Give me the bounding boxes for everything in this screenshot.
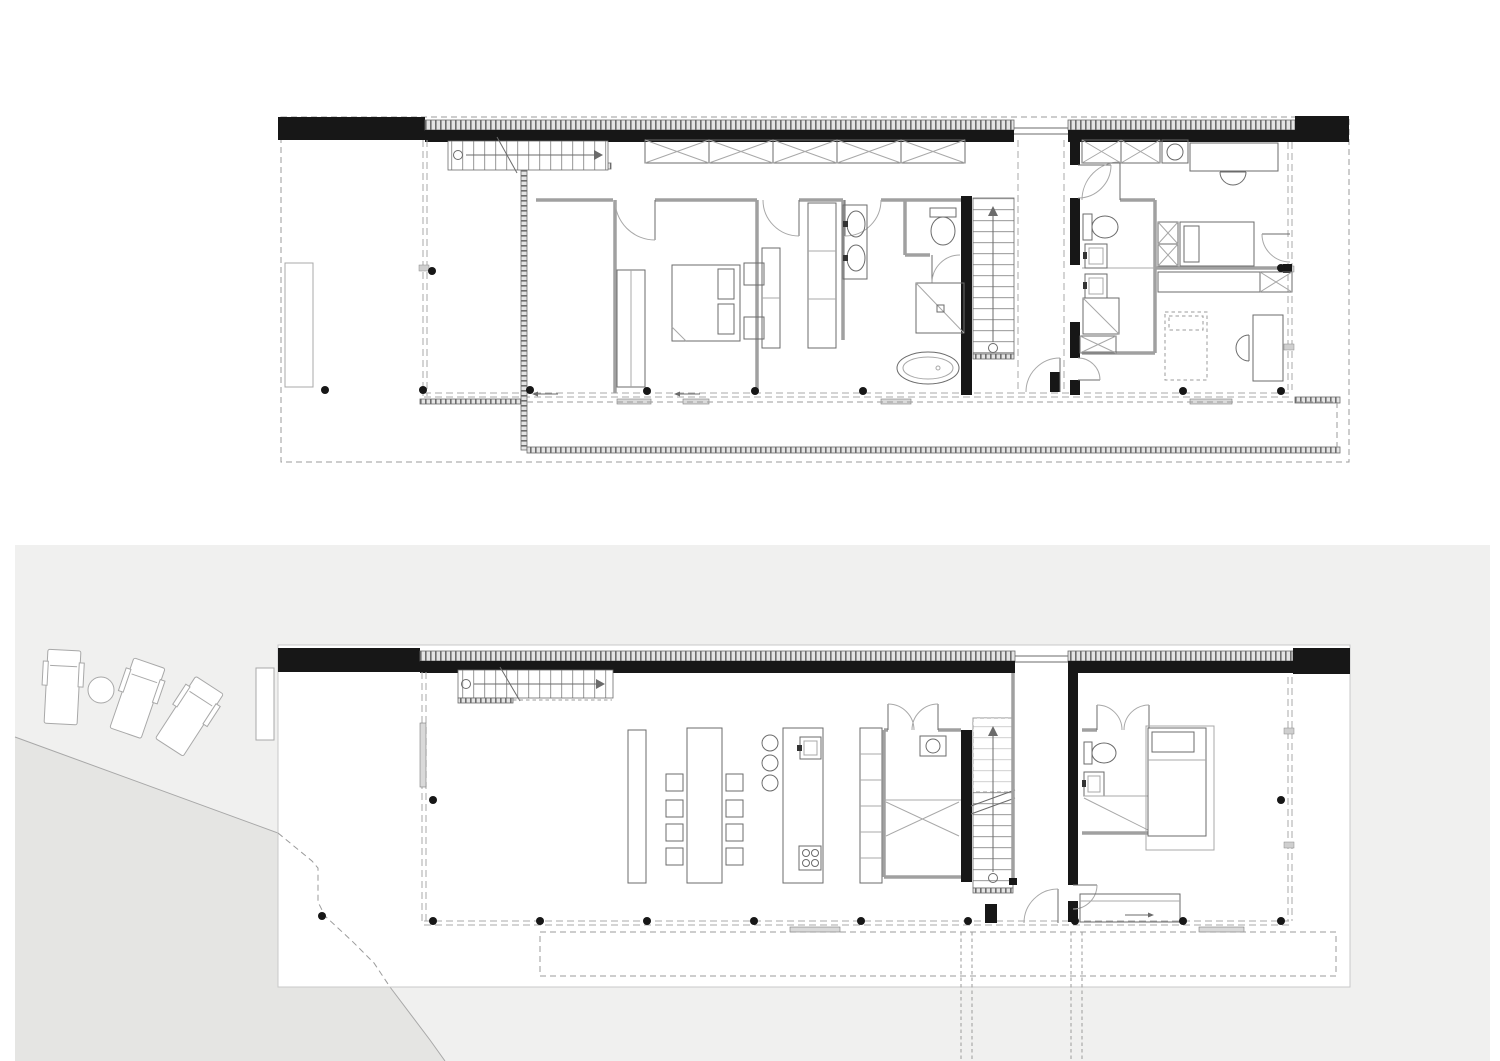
toilet-tank — [1083, 214, 1092, 240]
north-wall-parapet — [278, 116, 1349, 142]
stair-wall — [961, 196, 972, 395]
sliding-door — [420, 723, 426, 787]
tap-icon — [843, 255, 848, 261]
void-guardrail — [521, 166, 527, 450]
guest-bed-dashed — [1165, 312, 1207, 380]
bedroom-bed — [1148, 728, 1206, 836]
structural-columns-upper — [321, 264, 1285, 395]
toilet-bowl — [931, 217, 955, 245]
wardrobe-row-x — [645, 140, 1188, 163]
dining-table — [687, 728, 722, 883]
toilet-bowl — [1092, 216, 1118, 238]
counter — [1158, 272, 1260, 292]
plan-sheet — [0, 0, 1500, 1061]
breezeway-link-roof — [1014, 128, 1068, 134]
stair-flight-ground — [458, 667, 613, 703]
desk-south — [1253, 315, 1283, 381]
toilet-tank — [930, 208, 956, 217]
site-outline-dashed — [281, 117, 1349, 462]
master-bedroom — [617, 263, 764, 387]
desk-chair — [1236, 335, 1249, 361]
terrace-planter — [285, 263, 313, 387]
slide-arrow — [674, 392, 680, 397]
nightstand — [744, 263, 764, 285]
planter — [256, 668, 274, 740]
basin-icon — [1167, 144, 1183, 160]
breezeway-glazing-upper — [1018, 140, 1064, 392]
tap-icon — [843, 221, 848, 227]
floor-plan-drawing — [0, 0, 1500, 1061]
sink-basin — [847, 245, 865, 271]
nightstand — [744, 317, 764, 339]
lower-roof-outline — [527, 402, 1337, 447]
desk-north-group — [1190, 143, 1278, 185]
stair-down-upper — [973, 198, 1014, 359]
kids-bed — [1180, 222, 1254, 266]
kids-bedroom-north — [1158, 222, 1254, 266]
desk-chair — [1220, 172, 1246, 185]
kids-bedroom-south — [1158, 272, 1292, 381]
ground-floor-plan — [15, 545, 1490, 1061]
stair-wall — [961, 730, 972, 882]
sink-basin — [847, 211, 865, 237]
interior-walls-upper — [536, 140, 1292, 395]
sliding-door — [790, 927, 840, 932]
desk-north — [1190, 143, 1278, 171]
side-table — [88, 677, 114, 703]
master-bed — [672, 265, 740, 341]
stair-flight-upper — [448, 137, 608, 173]
sliding-door — [881, 399, 911, 404]
sliding-door — [1199, 927, 1244, 932]
stair-up-ground — [961, 718, 1015, 893]
pillow-dashed — [1169, 316, 1203, 330]
north-wall-ground — [278, 648, 1350, 674]
kids-bathroom — [1080, 214, 1119, 353]
tap-icon — [797, 745, 802, 751]
sliding-door — [683, 399, 709, 404]
upper-floor-plan — [278, 116, 1349, 462]
west-wall — [1068, 673, 1078, 885]
